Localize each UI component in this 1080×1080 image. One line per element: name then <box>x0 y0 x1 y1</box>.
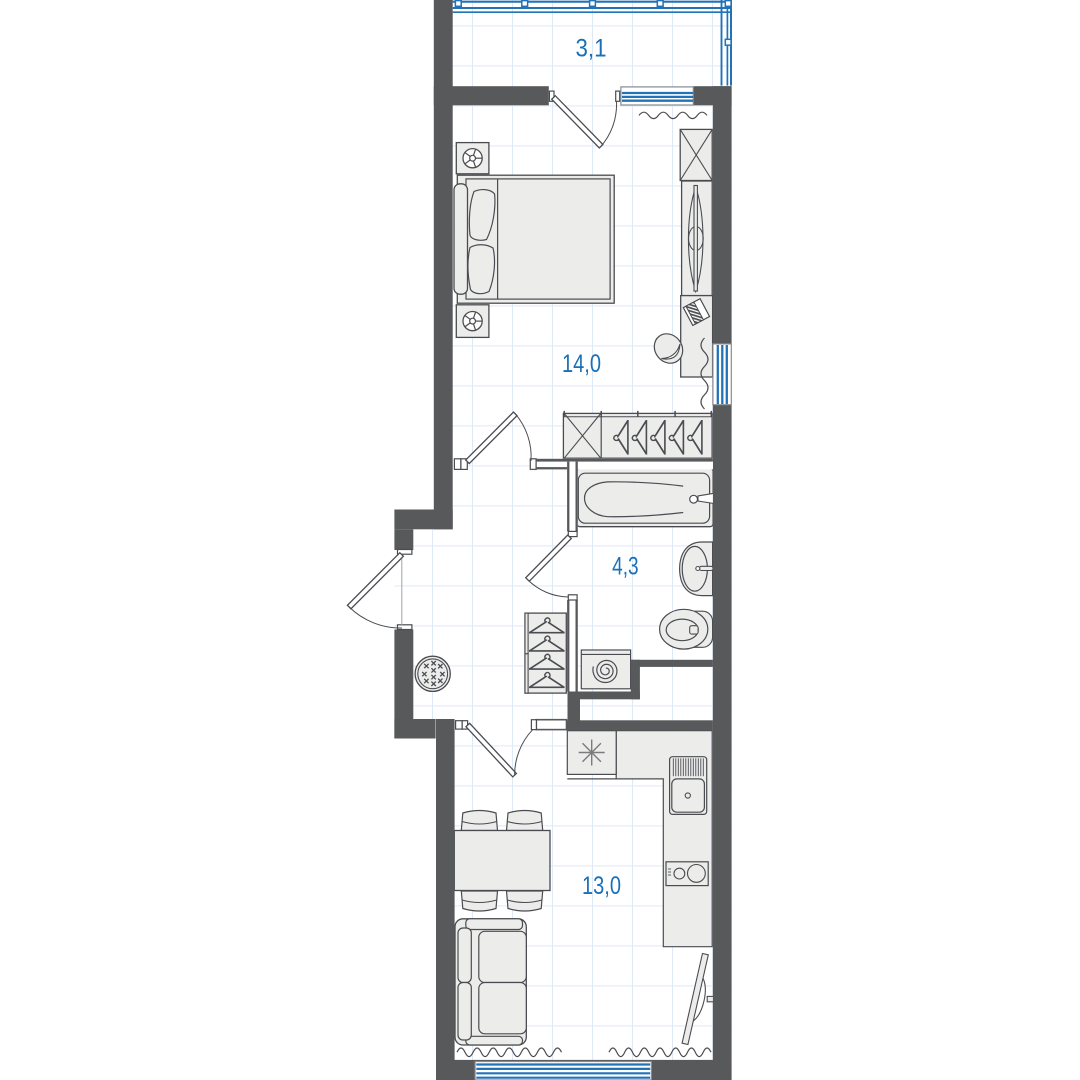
svg-text:13,0: 13,0 <box>582 872 621 900</box>
svg-text:14,0: 14,0 <box>562 350 601 378</box>
svg-text:3,1: 3,1 <box>576 35 607 63</box>
svg-text:4,3: 4,3 <box>612 553 639 581</box>
